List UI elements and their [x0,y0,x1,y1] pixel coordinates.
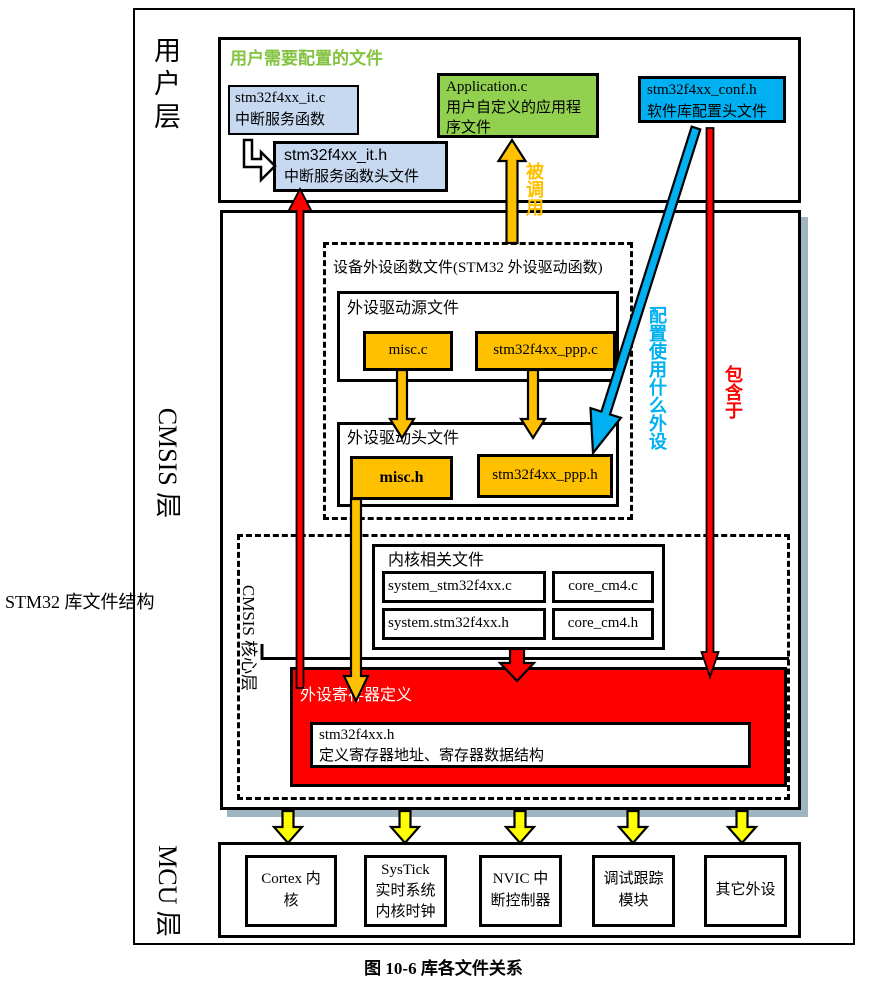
file-desc: 软件库配置头文件 [647,102,777,124]
mcu-box-line: 其它外设 [715,880,775,902]
mcu-box-line: SysTick [381,860,430,881]
mcu-box-line: Cortex 内 [261,869,321,891]
mcu-box-line: 断控制器 [490,891,550,913]
file-name: stm32f4xx.h [319,725,742,746]
file-name: stm32f4xx_conf.h [647,80,777,102]
file-box-system-stm32f4xx-h: system.stm32f4xx.h [382,608,546,640]
config-arrow-label: 配置使用什么外设 [644,306,670,450]
cmsis-core-label: CMSIS 核心层 [243,563,263,713]
file-box-stm32f4xx-ppp-h: stm32f4xx_ppp.h [477,454,613,498]
mcu-box-systick: SysTick 实时系统 内核时钟 [364,855,447,927]
kernel-files-title: 内核相关文件 [388,549,484,572]
mcu-box-cortex-core: Cortex 内 核 [245,855,337,927]
file-box-stm32f4xx-it-c: stm32f4xx_it.c 中断服务函数 [228,85,359,135]
side-label: STM32 库文件结构 [5,588,155,614]
file-name: stm32f4xx_it.h [284,145,437,167]
mcu-box-other-peripherals: 其它外设 [704,855,787,927]
file-desc: 中断服务函数 [235,110,352,132]
device-peripheral-title: 设备外设函数文件(STM32 外设驱动函数) [333,256,603,277]
cmsis-layer-label: CMSIS 层 [162,398,188,528]
mcu-box-nvic: NVIC 中 断控制器 [479,855,562,927]
figure-caption: 图 10-6 库各文件关系 [0,954,887,979]
mcu-box-debug-trace: 调试跟踪 模块 [592,855,675,927]
user-config-title: 用户需要配置的文件 [230,44,383,69]
mcu-box-line: 模块 [618,891,648,913]
file-desc: 中断服务函数头文件 [284,167,437,189]
included-arrow-label: 包含于 [720,365,746,419]
user-layer-label: 用户层 [146,36,185,135]
file-box-core-cm4-h: core_cm4.h [552,608,654,640]
driver-header-title: 外设驱动头文件 [347,427,459,450]
mcu-layer-label: MCU 层 [162,841,188,941]
file-box-misc-c: misc.c [363,331,453,371]
figure-canvas: STM32 库文件结构 用户层 用户需要配置的文件 stm32f4xx_it.c… [0,0,887,984]
file-desc2: 序文件 [446,118,590,139]
file-box-stm32f4xx-conf-h: stm32f4xx_conf.h 软件库配置头文件 [638,76,786,123]
file-desc: 用户自定义的应用程 [446,98,590,119]
driver-source-title: 外设驱动源文件 [347,297,459,320]
file-name: stm32f4xx_it.c [235,88,352,110]
mcu-box-line: 调试跟踪 [603,869,663,891]
file-box-core-cm4-c: core_cm4.c [552,571,654,603]
called-arrow-label: 被调用 [521,162,547,216]
file-box-stm32f4xx-it-h: stm32f4xx_it.h 中断服务函数头文件 [273,141,448,192]
register-definition-title: 外设寄存器定义 [300,684,412,707]
file-box-stm32f4xx-h: stm32f4xx.h 定义寄存器地址、寄存器数据结构 [310,722,751,768]
file-box-application-c: Application.c 用户自定义的应用程 序文件 [437,73,599,138]
mcu-box-line: NVIC 中 [493,869,548,891]
file-box-stm32f4xx-ppp-c: stm32f4xx_ppp.c [475,331,616,371]
file-name: Application.c [446,77,590,98]
mcu-box-line: 实时系统 [375,881,435,902]
file-box-misc-h: misc.h [350,456,453,500]
mcu-box-line: 核 [283,891,298,913]
file-desc: 定义寄存器地址、寄存器数据结构 [319,746,742,767]
file-box-system-stm32f4xx-c: system_stm32f4xx.c [382,571,546,603]
mcu-box-line: 内核时钟 [375,902,435,923]
